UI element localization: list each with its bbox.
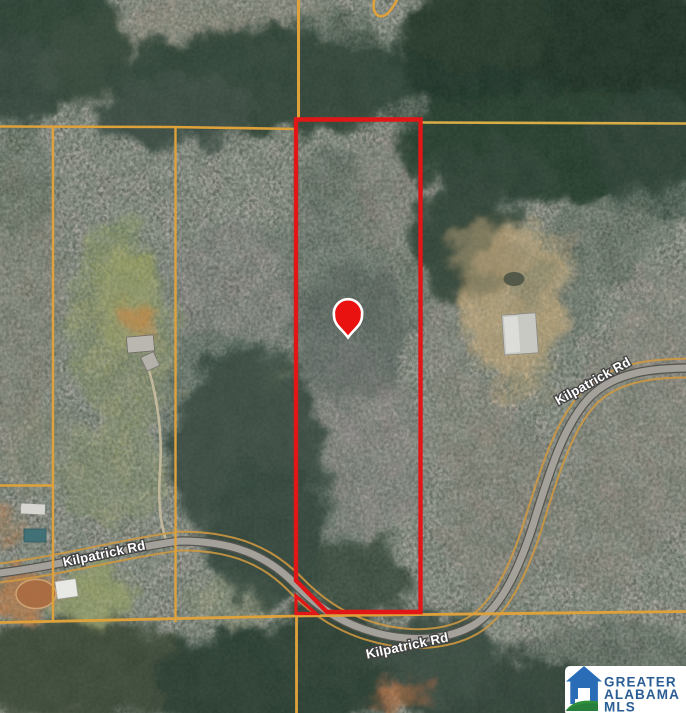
svg-text:MLS: MLS <box>604 699 636 713</box>
